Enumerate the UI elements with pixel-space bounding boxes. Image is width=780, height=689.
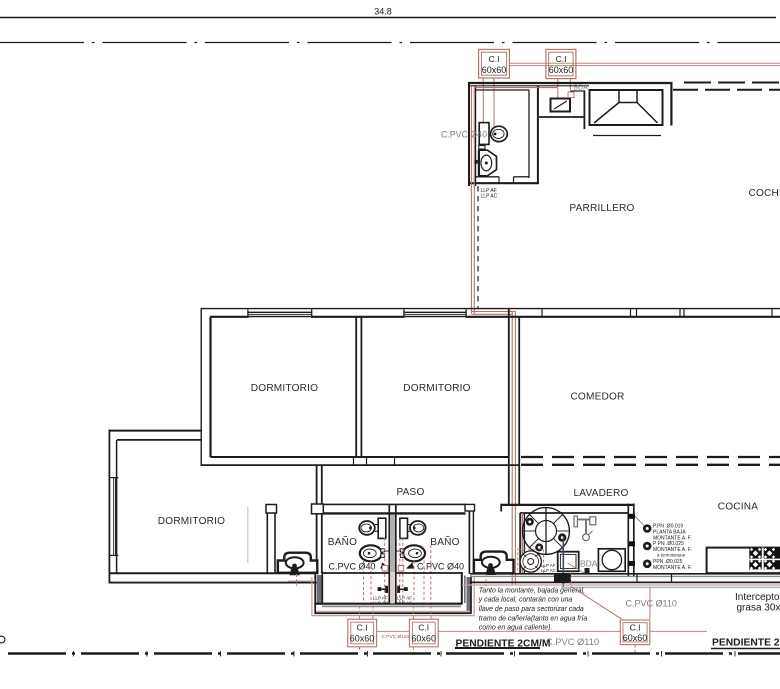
svg-text:y cada local, contarán con una: y cada local, contarán con una (478, 597, 573, 604)
svg-text:C.PVC Ø40: C.PVC Ø40 (329, 562, 376, 572)
svg-text:PARRILLERO: PARRILLERO (569, 203, 634, 214)
svg-text:34.8: 34.8 (374, 7, 392, 17)
svg-text:PASO: PASO (396, 487, 424, 498)
svg-text:C.PVC Ø40: C.PVC Ø40 (441, 130, 487, 140)
svg-text:C.I: C.I (630, 623, 641, 633)
svg-text:60x60: 60x60 (350, 634, 375, 644)
svg-text:60x60: 60x60 (623, 633, 648, 643)
svg-text:BAÑO: BAÑO (430, 535, 459, 548)
svg-text:LLP AC: LLP AC (373, 601, 389, 606)
svg-text:60x60: 60x60 (482, 65, 507, 75)
svg-text:60x60: 60x60 (549, 65, 574, 75)
svg-text:Tanto la montante, bajada gen: Tanto la montante, bajada general, (479, 587, 585, 594)
svg-text:COMEDOR: COMEDOR (570, 392, 624, 403)
svg-text:PENDIENTE 2CM/M: PENDIENTE 2CM/M (712, 638, 780, 649)
svg-text:COCHERA: COCHERA (749, 188, 780, 199)
svg-text:llave de paso para sectorizar: llave de paso para sectorizar cada (479, 606, 584, 613)
svg-text:LLP AC: LLP AC (481, 194, 498, 200)
svg-text:como en agua caliente).: como en agua caliente). (479, 625, 553, 632)
svg-text:MONTANTE A. F.: MONTANTE A. F. (653, 565, 692, 571)
svg-text:C.PVC Ø110: C.PVC Ø110 (626, 599, 677, 609)
svg-text:LAVADERO: LAVADERO (573, 488, 628, 499)
svg-text:C.I: C.I (357, 623, 368, 633)
svg-text:LLP AC: LLP AC (541, 568, 556, 573)
svg-text:BDA: BDA (580, 559, 598, 569)
svg-text:DORMITORIO: DORMITORIO (158, 516, 225, 527)
svg-text:C.I: C.I (556, 54, 567, 64)
svg-text:Interceptor de: Interceptor de (735, 592, 780, 603)
svg-text:COCINA: COCINA (718, 502, 759, 513)
svg-text:DORMITORIO: DORMITORIO (403, 383, 470, 394)
svg-text:C.I: C.I (418, 623, 429, 633)
svg-text:60x60: 60x60 (411, 634, 436, 644)
svg-text:C.PVC Ø110: C.PVC Ø110 (382, 634, 410, 640)
svg-text:tramo de cañería(tanto en agua: tramo de cañería(tanto en agua fría (479, 615, 588, 622)
svg-text:C.PVC Ø110: C.PVC Ø110 (546, 637, 599, 647)
svg-text:BAÑO: BAÑO (328, 535, 357, 548)
svg-text:LLP AC: LLP AC (397, 601, 413, 606)
svg-text:C.I: C.I (489, 54, 500, 64)
svg-text:DORMITORIO: DORMITORIO (251, 383, 318, 394)
svg-text:grasa 30x50: grasa 30x50 (737, 603, 780, 614)
svg-text:a termotanque: a termotanque (657, 552, 686, 557)
